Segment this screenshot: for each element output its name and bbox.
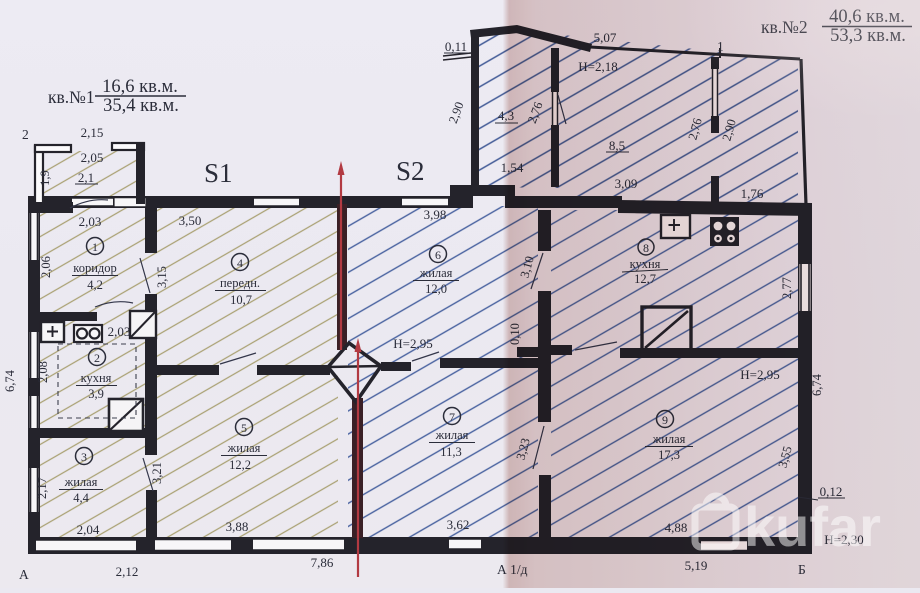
svg-text:kufar: kufar	[744, 495, 881, 558]
